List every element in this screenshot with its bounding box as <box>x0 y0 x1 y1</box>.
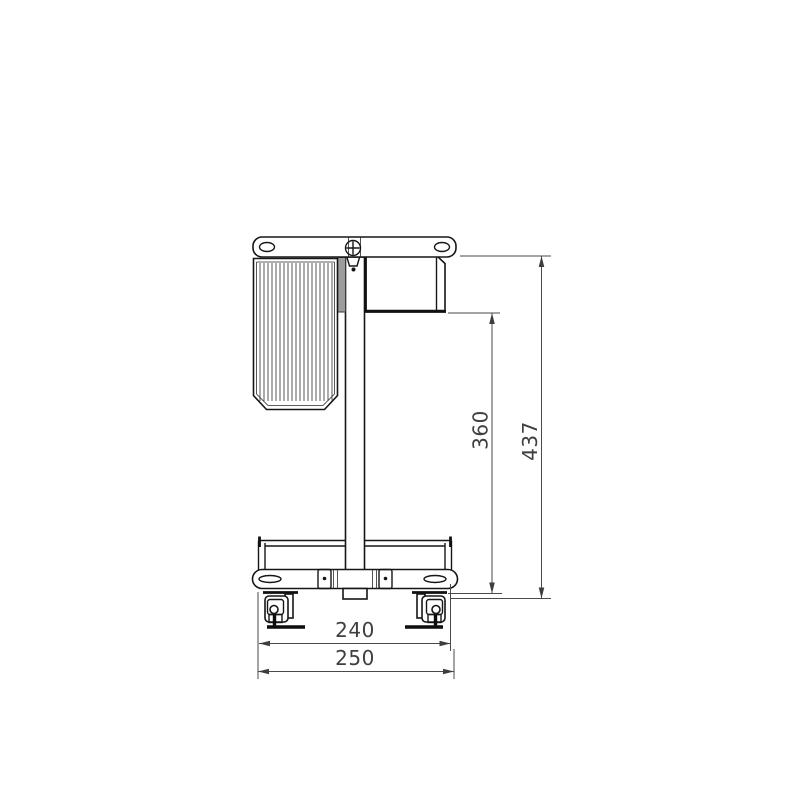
ribbed-housing <box>254 259 338 410</box>
shaded-connector <box>338 258 346 313</box>
arrow-down-icon <box>539 588 545 599</box>
technical-drawing: 360 437 240 250 <box>0 0 800 800</box>
arrow-up-icon <box>489 313 495 324</box>
side-box <box>365 256 447 312</box>
base-plate <box>253 570 458 600</box>
drawing-canvas: 360 437 240 250 <box>0 0 800 800</box>
arrow-down-icon <box>489 583 495 594</box>
dimension-360: 360 <box>448 313 502 594</box>
caster-axle-right <box>432 606 440 614</box>
arrow-right-icon <box>440 641 451 647</box>
caster-right <box>405 593 447 628</box>
arrow-right-icon <box>443 669 454 675</box>
dim-label-240: 240 <box>335 618 375 642</box>
caster-left <box>263 593 305 628</box>
dim-label-360: 360 <box>469 410 493 450</box>
arrow-left-icon <box>259 641 270 647</box>
dim-label-250: 250 <box>335 646 375 670</box>
column-hole <box>352 268 356 272</box>
dimension-437: 437 <box>450 256 551 599</box>
column-foot-tab <box>343 589 367 600</box>
dim-label-437: 437 <box>518 421 542 461</box>
arrow-left-icon <box>258 669 269 675</box>
vertical-column <box>346 257 365 598</box>
arrow-up-icon <box>539 256 545 267</box>
caster-axle-left <box>270 606 278 614</box>
screw-icon <box>346 241 361 256</box>
